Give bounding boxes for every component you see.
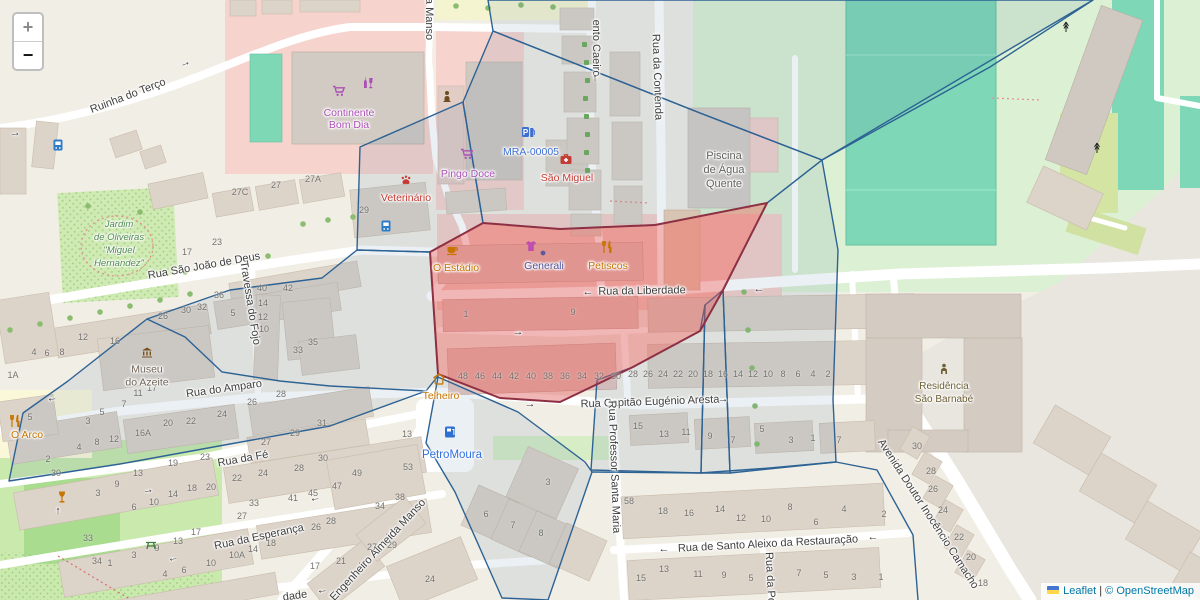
ukraine-flag-icon bbox=[1047, 586, 1059, 594]
zoom-out-button[interactable]: − bbox=[14, 41, 42, 69]
attribution-separator: | bbox=[1096, 585, 1105, 597]
attribution-bar: Leaflet | © OpenStreetMap bbox=[1041, 583, 1200, 600]
leaflet-map[interactable]: Ruinha do Terçoa Mansoento CaeiroRua da … bbox=[0, 0, 1200, 600]
boundary-overlay-layer bbox=[0, 0, 1200, 600]
zoom-control: + − bbox=[12, 12, 44, 71]
openstreetmap-link[interactable]: © OpenStreetMap bbox=[1105, 585, 1194, 597]
zoom-in-button[interactable]: + bbox=[14, 14, 42, 41]
leaflet-link[interactable]: Leaflet bbox=[1063, 585, 1096, 597]
